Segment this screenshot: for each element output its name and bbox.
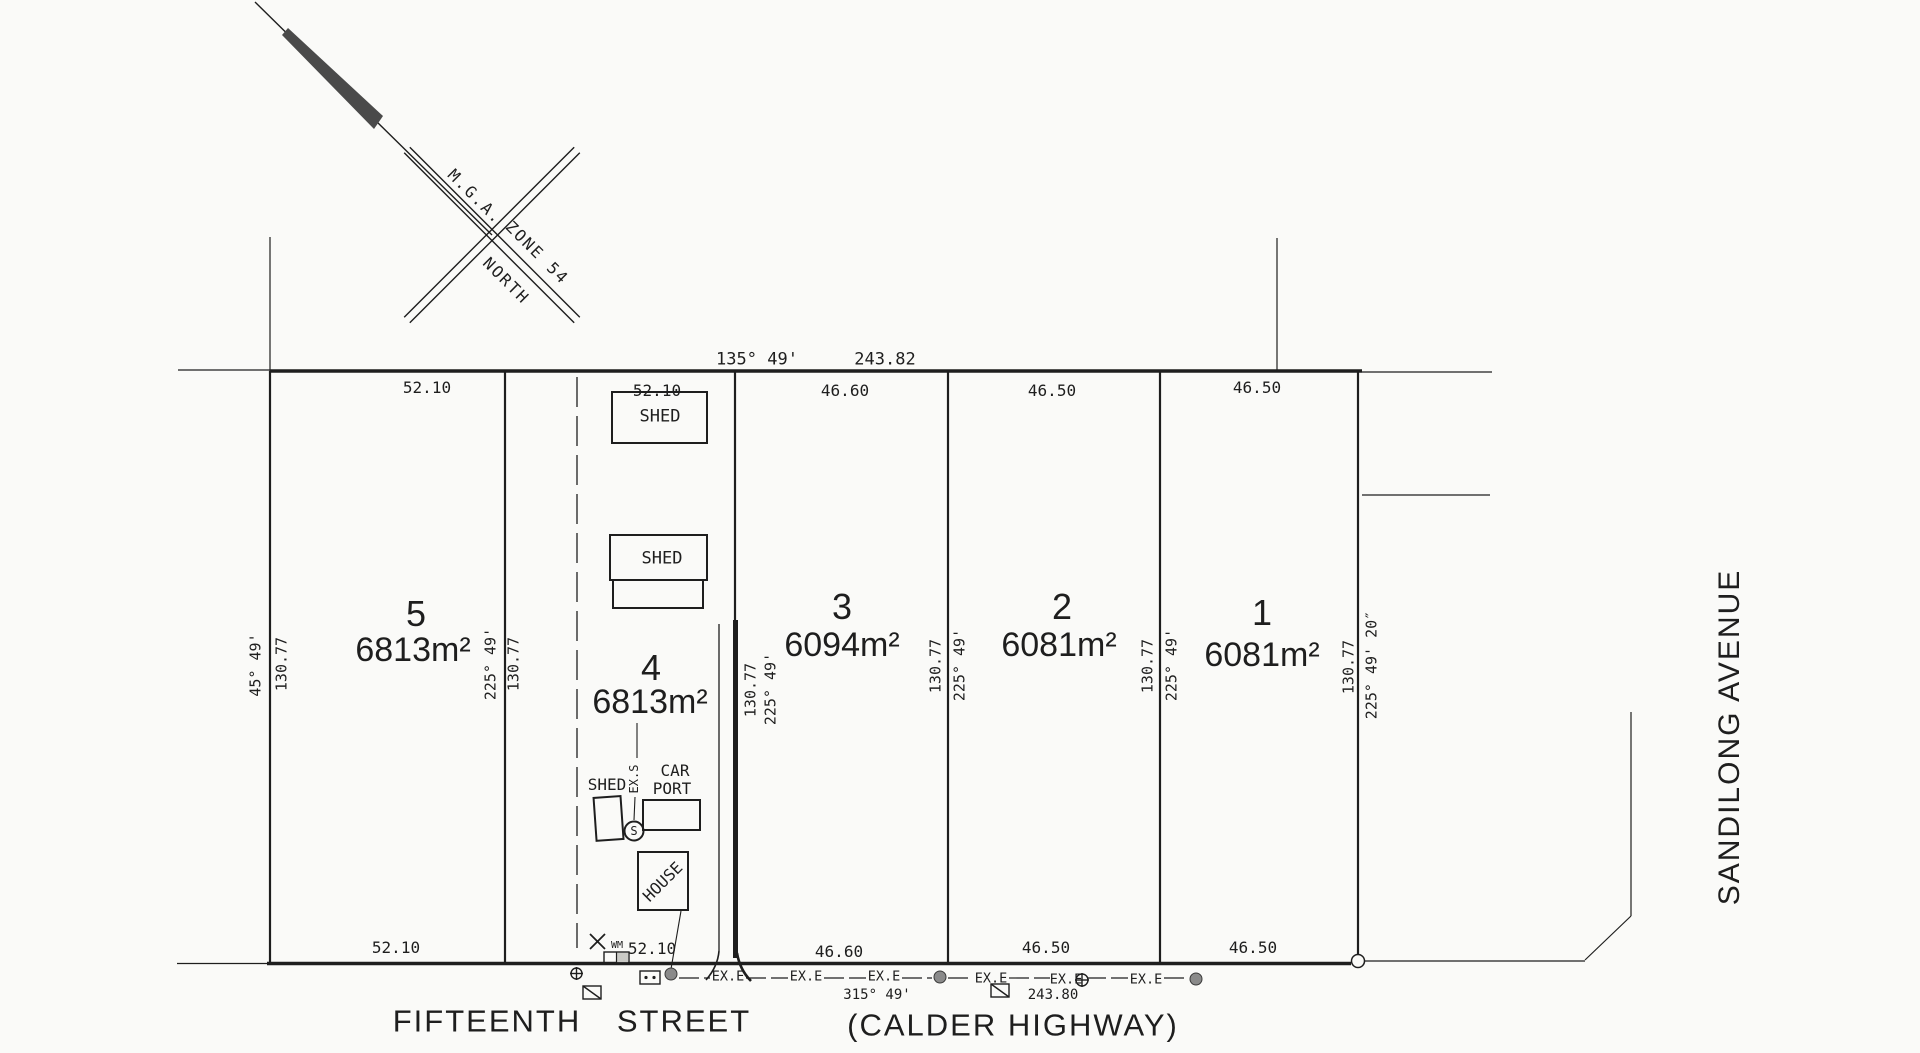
exe-label-1: EX.E <box>712 970 745 984</box>
lot1-area: 6081m² <box>1204 638 1319 672</box>
lot3-lot2-bearing: 225° 49' <box>953 629 968 701</box>
lot2-frontage-top: 46.50 <box>1028 383 1076 399</box>
power-point-s-label: S <box>630 825 637 837</box>
lot4-area: 6813m² <box>592 685 707 719</box>
lot4-number: 4 <box>641 650 661 686</box>
exs-label: EX.S <box>628 765 640 794</box>
water-meter-box <box>617 953 628 962</box>
north-boundary-bearing: 135° 49' <box>716 352 798 369</box>
pit-square-diagonal <box>583 984 1009 999</box>
lot3-lot2-distance: 130.77 <box>929 639 944 693</box>
street-name-street: STREET <box>617 1006 751 1037</box>
exe-label-5: EX.E <box>1050 973 1083 987</box>
north-arrow <box>255 2 580 323</box>
carport-label-port: PORT <box>653 781 692 797</box>
lot2-lot1-bearing: 225° 49' <box>1165 629 1180 701</box>
exe-label-6: EX.E <box>1130 973 1163 987</box>
lot3-area: 6094m² <box>784 628 899 662</box>
lot4-lot3-bearing: 225° 49' <box>764 653 779 725</box>
lot5-number: 5 <box>406 596 426 632</box>
street-name-sandilong: SANDILONG AVENUE <box>1715 569 1745 906</box>
street-name-calder: (CALDER HIGHWAY) <box>847 1010 1179 1041</box>
south-boundary-bearing: 315° 49' <box>843 988 910 1002</box>
shed-middle-label: SHED <box>642 551 683 568</box>
north-boundary-distance: 243.82 <box>854 352 915 369</box>
lot1-frontage-bottom: 46.50 <box>1229 940 1277 956</box>
lot2-lot1-distance: 130.77 <box>1141 639 1156 693</box>
lot4-lot3-distance: 130.77 <box>744 663 759 717</box>
street-name-fifteenth: FIFTEENTH <box>393 1006 582 1037</box>
lot5-frontage-bottom: 52.10 <box>372 940 420 956</box>
carport-label-car: CAR <box>661 763 690 779</box>
lot4-frontage-bottom: 52.10 <box>628 941 676 957</box>
lot3-frontage-top: 46.60 <box>821 383 869 399</box>
west-boundary-bearing: 45° 49' <box>249 633 264 696</box>
south-boundary-distance: 243.80 <box>1028 988 1079 1002</box>
exe-label-2: EX.E <box>790 970 823 984</box>
shed-small-outline <box>594 796 624 841</box>
shed-small-label: SHED <box>588 777 627 793</box>
exe-label-3: EX.E <box>868 970 901 984</box>
lot5-lot4-distance: 130.77 <box>507 637 522 691</box>
carport-outline <box>643 800 700 830</box>
lot3-number: 3 <box>832 589 852 625</box>
lot5-frontage-top: 52.10 <box>403 380 451 396</box>
corner-mark-circle <box>1352 955 1365 968</box>
north-needle-blade <box>282 28 383 129</box>
lot4-frontage-top: 52.10 <box>633 383 681 399</box>
plan-linework <box>0 0 1920 1053</box>
lot-boundaries <box>267 371 1365 981</box>
water-meter-label: WM <box>611 941 623 951</box>
shed-middle-annex <box>613 580 703 608</box>
east-boundary-bearing: 225° 49' 20″ <box>1365 611 1380 719</box>
road-lines <box>177 237 1631 964</box>
lot2-number: 2 <box>1052 589 1072 625</box>
pit-box-dots <box>640 971 660 984</box>
lot1-number: 1 <box>1252 595 1272 631</box>
lot2-area: 6081m² <box>1001 628 1116 662</box>
lot1-frontage-top: 46.50 <box>1233 380 1281 396</box>
east-boundary-distance: 130.77 <box>1342 640 1357 694</box>
lot3-frontage-bottom: 46.60 <box>815 944 863 960</box>
survey-plan: M.G.A. ZONE 54 NORTH 135° 49' 243.82 52.… <box>0 0 1920 1053</box>
exe-label-4: EX.E <box>975 972 1008 986</box>
lot5-area: 6813m² <box>355 633 470 667</box>
shed-top-label: SHED <box>640 409 681 426</box>
west-boundary-distance: 130.77 <box>275 637 290 691</box>
lot2-frontage-bottom: 46.50 <box>1022 940 1070 956</box>
lot5-lot4-bearing: 225° 49' <box>484 628 499 700</box>
